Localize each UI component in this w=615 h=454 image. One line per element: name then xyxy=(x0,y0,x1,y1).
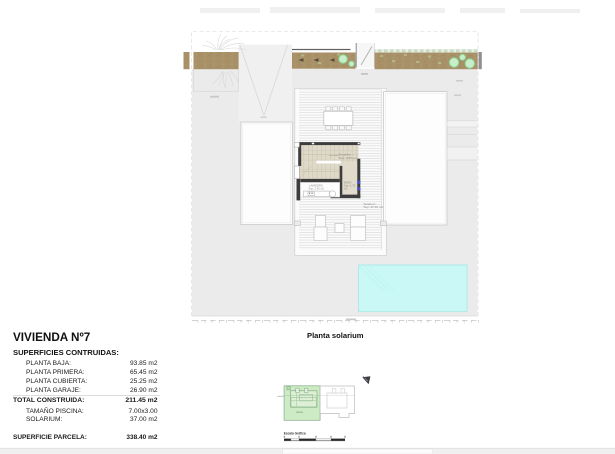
svg-text:Sup: 2.60 m2: Sup: 2.60 m2 xyxy=(309,187,325,191)
svg-text:Escala Gráfica: Escala Gráfica xyxy=(284,432,306,436)
svg-text:Sup: 3.95 m2: Sup: 3.95 m2 xyxy=(339,156,357,160)
svg-text:Sup: 37.00 m2: Sup: 37.00 m2 xyxy=(364,205,384,209)
svg-text:m2: m2 xyxy=(344,187,348,191)
